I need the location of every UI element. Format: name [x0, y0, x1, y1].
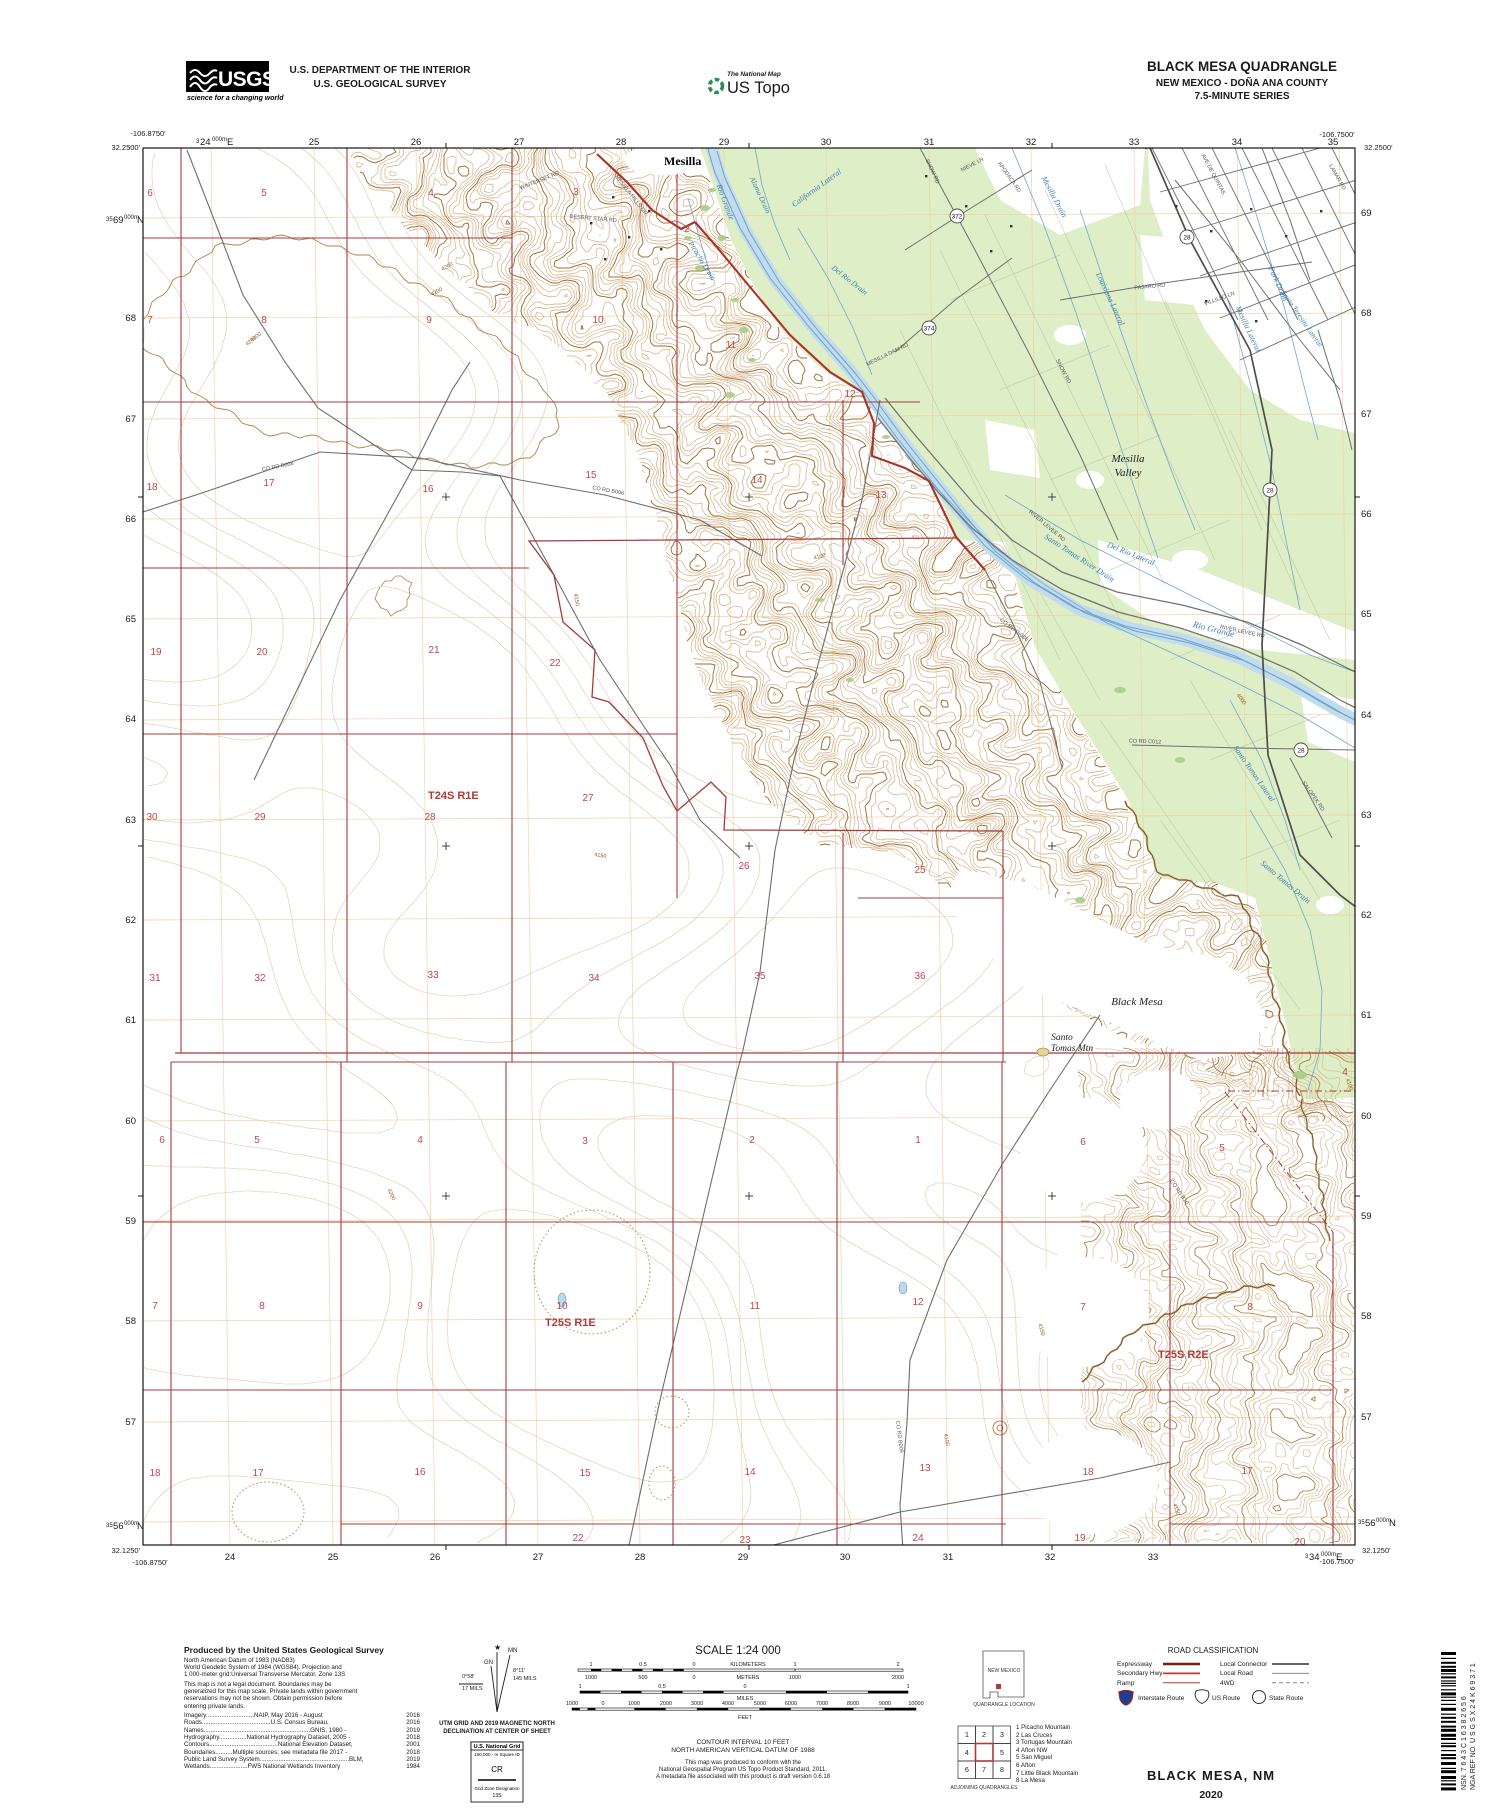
- svg-text:NEW MEXICO - DOÑA ANA COUNTY: NEW MEXICO - DOÑA ANA COUNTY: [1156, 76, 1329, 89]
- svg-text:5: 5: [1000, 1750, 1004, 1757]
- svg-text:8: 8: [1000, 1767, 1004, 1774]
- svg-text:63: 63: [1361, 810, 1372, 821]
- svg-text:6000: 6000: [785, 1701, 797, 1707]
- svg-text:27: 27: [514, 137, 525, 148]
- svg-text:9: 9: [426, 315, 432, 326]
- svg-text:32: 32: [254, 973, 266, 984]
- svg-text:Santo: Santo: [1051, 1033, 1073, 1043]
- svg-text:4: 4: [965, 1750, 969, 1757]
- svg-text:28: 28: [616, 137, 627, 148]
- svg-text:T25S R2E: T25S R2E: [1158, 1349, 1209, 1361]
- svg-text:1: 1: [906, 1684, 909, 1690]
- svg-text:10: 10: [556, 1301, 568, 1312]
- svg-text:2019: 2019: [406, 1756, 420, 1763]
- svg-text:1: 1: [578, 1684, 581, 1690]
- svg-text:5: 5: [254, 1135, 260, 1146]
- svg-text:U.S. GEOLOGICAL SURVEY: U.S. GEOLOGICAL SURVEY: [314, 79, 447, 90]
- svg-text:30: 30: [840, 1552, 851, 1563]
- svg-text:60: 60: [125, 1116, 136, 1127]
- svg-text:7: 7: [152, 1301, 158, 1312]
- svg-text:2: 2: [982, 1732, 986, 1739]
- svg-text:56: 56: [1365, 1518, 1376, 1529]
- svg-text:6: 6: [965, 1767, 969, 1774]
- svg-text:3 Tortugas Mountain: 3 Tortugas Mountain: [1016, 1739, 1073, 1746]
- svg-text:28: 28: [1266, 488, 1274, 495]
- svg-text:2018: 2018: [406, 1749, 420, 1756]
- svg-text:DECLINATION AT CENTER OF SHEET: DECLINATION AT CENTER OF SHEET: [443, 1729, 551, 1735]
- svg-text:14: 14: [744, 1467, 756, 1478]
- svg-text:E: E: [1336, 1552, 1342, 1563]
- svg-text:BLACK MESA, NM: BLACK MESA, NM: [1147, 1768, 1275, 1783]
- svg-text:000m: 000m: [1321, 1552, 1336, 1558]
- svg-text:This map was produced to confo: This map was produced to conform with th…: [685, 1760, 802, 1766]
- svg-text:ROAD CLASSIFICATION: ROAD CLASSIFICATION: [1168, 1646, 1259, 1655]
- svg-text:35: 35: [1328, 137, 1339, 148]
- svg-text:7.5-MINUTE SERIES: 7.5-MINUTE SERIES: [1194, 91, 1289, 102]
- svg-text:Expressway: Expressway: [1117, 1661, 1153, 1668]
- svg-text:1000: 1000: [789, 1675, 801, 1681]
- svg-text:Mesilla: Mesilla: [664, 154, 701, 168]
- svg-text:0: 0: [692, 1675, 695, 1681]
- svg-text:29: 29: [719, 137, 730, 148]
- svg-text:The National Map: The National Map: [727, 71, 781, 78]
- svg-text:62: 62: [1361, 910, 1372, 921]
- svg-text:T24S R1E: T24S R1E: [428, 790, 479, 802]
- svg-text:US Topo: US Topo: [727, 79, 790, 97]
- svg-text:12: 12: [844, 389, 856, 400]
- svg-text:10000: 10000: [908, 1701, 923, 1707]
- svg-text:US Route: US Route: [1212, 1695, 1241, 1702]
- svg-text:CR: CR: [491, 1765, 503, 1774]
- svg-text:GN: GN: [484, 1660, 493, 1666]
- svg-text:MN: MN: [508, 1648, 517, 1654]
- svg-text:13: 13: [875, 490, 887, 501]
- svg-text:2000: 2000: [892, 1675, 904, 1681]
- svg-text:24: 24: [225, 1552, 236, 1563]
- svg-text:13S: 13S: [493, 1793, 503, 1799]
- svg-text:28: 28: [1297, 748, 1305, 755]
- svg-text:4 Afton NW: 4 Afton NW: [1016, 1747, 1047, 1754]
- svg-text:24: 24: [912, 1533, 924, 1544]
- svg-text:26: 26: [738, 861, 750, 872]
- svg-text:-106.8750′: -106.8750′: [130, 129, 166, 138]
- svg-text:T25S R1E: T25S R1E: [545, 1317, 596, 1329]
- svg-text:9000: 9000: [879, 1701, 891, 1707]
- svg-text:500: 500: [638, 1675, 647, 1681]
- svg-text:1000: 1000: [566, 1701, 578, 1707]
- svg-text:0.5: 0.5: [639, 1662, 647, 1668]
- svg-text:Wetlands......................: Wetlands......................FWS Nation…: [184, 1763, 341, 1770]
- svg-text:59: 59: [1361, 1211, 1372, 1222]
- svg-text:U.S. National Grid: U.S. National Grid: [474, 1744, 521, 1750]
- svg-text:2: 2: [749, 1135, 755, 1146]
- svg-text:32.1250′: 32.1250′: [111, 1546, 140, 1555]
- svg-text:68: 68: [1361, 308, 1372, 319]
- svg-text:3: 3: [582, 1136, 588, 1147]
- svg-text:Black Mesa: Black Mesa: [1111, 996, 1163, 1008]
- svg-text:ADJOINING QUADRANGLES: ADJOINING QUADRANGLES: [951, 1785, 1019, 1791]
- svg-text:METERS: METERS: [737, 1675, 760, 1681]
- svg-text:28: 28: [635, 1552, 646, 1563]
- svg-text:E: E: [227, 137, 233, 148]
- svg-text:18: 18: [1082, 1467, 1094, 1478]
- svg-text:65: 65: [1361, 609, 1372, 620]
- svg-text:5 San Miguel: 5 San Miguel: [1016, 1754, 1052, 1761]
- svg-text:2019: 2019: [406, 1727, 420, 1734]
- svg-text:35: 35: [754, 971, 766, 982]
- svg-text:State Route: State Route: [1269, 1695, 1304, 1702]
- svg-text:Produced by the United States: Produced by the United States Geological…: [184, 1645, 384, 1655]
- svg-text:25: 25: [328, 1552, 339, 1563]
- svg-text:29: 29: [738, 1552, 749, 1563]
- svg-text:8: 8: [261, 315, 267, 326]
- svg-text:66: 66: [1361, 509, 1372, 520]
- svg-text:66: 66: [125, 514, 136, 525]
- svg-text:63: 63: [125, 815, 136, 826]
- svg-text:7: 7: [147, 315, 153, 326]
- svg-text:17: 17: [1241, 1466, 1253, 1477]
- svg-text:Imagery.......................: Imagery............................NAIP,…: [184, 1712, 323, 1719]
- svg-text:Grid Zone Designation: Grid Zone Designation: [474, 1786, 520, 1791]
- svg-text:1: 1: [793, 1662, 796, 1668]
- svg-text:National Geospatial Program US: National Geospatial Program US Topo Prod…: [659, 1767, 827, 1773]
- svg-text:33: 33: [1148, 1552, 1159, 1563]
- svg-text:entering private lands.: entering private lands.: [184, 1703, 245, 1710]
- svg-text:31: 31: [149, 973, 161, 984]
- svg-text:4000: 4000: [722, 1701, 734, 1707]
- svg-text:Secondary Hwy: Secondary Hwy: [1117, 1670, 1163, 1677]
- svg-text:30: 30: [821, 137, 832, 148]
- svg-text:26: 26: [411, 137, 422, 148]
- svg-text:MILES: MILES: [737, 1696, 754, 1702]
- svg-text:61: 61: [1361, 1010, 1372, 1021]
- svg-text:69: 69: [1361, 208, 1372, 219]
- svg-text:North American Datum of 1983 (: North American Datum of 1983 (NAD83): [184, 1657, 295, 1664]
- svg-text:N: N: [1389, 1518, 1396, 1529]
- svg-text:2016: 2016: [406, 1719, 420, 1726]
- svg-text:18: 18: [149, 1468, 161, 1479]
- svg-text:2 Las Cruces: 2 Las Cruces: [1016, 1732, 1052, 1739]
- svg-text:374: 374: [924, 326, 935, 333]
- svg-text:30: 30: [146, 812, 158, 823]
- svg-text:32: 32: [1026, 137, 1037, 148]
- svg-text:NORTH AMERICAN VERTICAL DATUM: NORTH AMERICAN VERTICAL DATUM OF 1988: [671, 1747, 815, 1754]
- svg-text:59: 59: [125, 1216, 136, 1227]
- svg-text:11: 11: [726, 340, 737, 351]
- svg-text:World Geodetic System of 1984: World Geodetic System of 1984 (WGS84). P…: [184, 1664, 342, 1671]
- svg-text:This map is not a legal docume: This map is not a legal document. Bounda…: [184, 1681, 332, 1688]
- svg-text:7 Little Black Mountain: 7 Little Black Mountain: [1016, 1770, 1079, 1777]
- svg-text:5: 5: [261, 188, 267, 199]
- svg-text:Valley: Valley: [1115, 467, 1142, 479]
- svg-text:8: 8: [259, 1301, 265, 1312]
- svg-text:0°58′: 0°58′: [462, 1674, 474, 1680]
- svg-text:3: 3: [1000, 1732, 1004, 1739]
- svg-text:UTM GRID AND 2019 MAGNETIC NOR: UTM GRID AND 2019 MAGNETIC NORTH: [439, 1721, 555, 1727]
- svg-text:20: 20: [256, 647, 268, 658]
- svg-text:7: 7: [982, 1767, 986, 1774]
- svg-text:CONTOUR INTERVAL 10 FEET: CONTOUR INTERVAL 10 FEET: [697, 1739, 790, 1746]
- svg-text:57: 57: [125, 1417, 136, 1428]
- svg-text:5000: 5000: [754, 1701, 766, 1707]
- svg-text:6 Afton: 6 Afton: [1016, 1762, 1036, 1769]
- svg-text:61: 61: [125, 1015, 136, 1026]
- svg-text:NEW MEXICO: NEW MEXICO: [988, 1668, 1021, 1674]
- svg-text:31: 31: [924, 137, 935, 148]
- svg-text:145 MILS: 145 MILS: [513, 1676, 537, 1682]
- svg-text:6: 6: [159, 1135, 165, 1146]
- svg-text:Public Land Survey System..: Public Land Survey System...............…: [184, 1756, 364, 1763]
- svg-text:0: 0: [601, 1701, 604, 1707]
- svg-text:19: 19: [150, 647, 162, 658]
- svg-text:11: 11: [750, 1301, 761, 1312]
- svg-text:25: 25: [309, 137, 320, 148]
- svg-text:USGS: USGS: [218, 68, 276, 91]
- svg-text:Local Road: Local Road: [1220, 1670, 1253, 1677]
- svg-text:1000: 1000: [628, 1701, 640, 1707]
- svg-text:16: 16: [414, 1467, 426, 1478]
- svg-text:NSN. 7 6 4 3 C 1 6 3 8 2 6 5: NSN. 7 6 4 3 C 1 6 3 8 2 6 5 6: [1461, 1696, 1468, 1790]
- svg-text:Names.........................: Names...................................…: [184, 1727, 346, 1734]
- svg-text:67: 67: [1361, 409, 1372, 420]
- svg-text:26: 26: [430, 1552, 441, 1563]
- svg-text:64: 64: [1361, 710, 1372, 721]
- svg-text:4: 4: [417, 1135, 423, 1146]
- svg-text:62: 62: [125, 915, 136, 926]
- svg-text:22: 22: [549, 658, 561, 669]
- svg-text:U.S. DEPARTMENT OF THE INTERIO: U.S. DEPARTMENT OF THE INTERIOR: [290, 65, 472, 76]
- svg-text:68: 68: [125, 313, 136, 324]
- svg-text:14: 14: [751, 475, 763, 486]
- svg-text:58: 58: [1361, 1311, 1372, 1322]
- svg-text:32: 32: [1045, 1552, 1056, 1563]
- svg-text:21: 21: [428, 645, 440, 656]
- svg-text:2001: 2001: [406, 1741, 420, 1748]
- svg-text:60: 60: [1361, 1111, 1372, 1122]
- svg-text:0: 0: [692, 1662, 695, 1668]
- svg-text:64: 64: [125, 714, 136, 725]
- svg-text:3000: 3000: [691, 1701, 703, 1707]
- svg-text:Contours......................: Contours................................…: [184, 1741, 353, 1748]
- svg-text:1: 1: [965, 1732, 969, 1739]
- svg-text:1 Picacho Mountain: 1 Picacho Mountain: [1016, 1724, 1071, 1731]
- svg-text:BLACK MESA QUADRANGLE: BLACK MESA QUADRANGLE: [1147, 59, 1337, 74]
- svg-text:17: 17: [263, 478, 275, 489]
- svg-text:1000: 1000: [585, 1675, 597, 1681]
- svg-text:34: 34: [1309, 1552, 1320, 1563]
- svg-text:65: 65: [125, 614, 136, 625]
- svg-text:33: 33: [427, 970, 439, 981]
- svg-text:100,000 - m Square ID: 100,000 - m Square ID: [474, 1752, 520, 1757]
- svg-text:29: 29: [254, 812, 266, 823]
- svg-text:16: 16: [422, 484, 434, 495]
- svg-text:5: 5: [1219, 1143, 1225, 1154]
- svg-text:34: 34: [1232, 137, 1243, 148]
- svg-text:7: 7: [1080, 1302, 1086, 1313]
- svg-text:Roads.........................: Roads...................................…: [184, 1719, 329, 1726]
- svg-text:15: 15: [579, 1468, 591, 1479]
- svg-text:generalized for this map scale: generalized for this map scale. Private …: [184, 1688, 358, 1695]
- svg-text:2018: 2018: [406, 1734, 420, 1741]
- svg-text:28: 28: [1183, 235, 1191, 242]
- svg-text:17: 17: [252, 1468, 264, 1479]
- svg-text:67: 67: [125, 414, 136, 425]
- svg-text:Boundaries..........Multiple: Boundaries..........Multiple sources; se…: [184, 1749, 347, 1756]
- svg-text:32.1250′: 32.1250′: [1362, 1546, 1391, 1555]
- svg-text:56: 56: [113, 1521, 124, 1532]
- svg-text:8 La Mesa: 8 La Mesa: [1016, 1777, 1045, 1784]
- svg-text:2016: 2016: [406, 1712, 420, 1719]
- svg-text:18: 18: [146, 482, 158, 493]
- svg-text:372: 372: [952, 214, 963, 221]
- svg-text:17 MILS: 17 MILS: [462, 1686, 483, 1692]
- svg-text:8°11′: 8°11′: [513, 1668, 525, 1674]
- svg-text:Ramp: Ramp: [1117, 1680, 1135, 1687]
- svg-text:27: 27: [582, 793, 594, 804]
- svg-text:8000: 8000: [847, 1701, 859, 1707]
- svg-text:28: 28: [424, 812, 436, 823]
- svg-text:6: 6: [1080, 1137, 1086, 1148]
- svg-text:Interstate Route: Interstate Route: [1138, 1695, 1185, 1702]
- svg-text:1: 1: [589, 1662, 592, 1668]
- svg-text:36: 36: [914, 971, 926, 982]
- svg-text:1 000-meter grid:Universal Tra: 1 000-meter grid:Universal Transverse Me…: [184, 1671, 345, 1678]
- svg-text:31: 31: [943, 1552, 954, 1563]
- svg-text:3: 3: [573, 187, 579, 198]
- svg-text:32.2500′: 32.2500′: [1364, 143, 1393, 152]
- svg-text:24: 24: [200, 137, 211, 148]
- svg-text:4: 4: [428, 188, 434, 199]
- svg-text:NGA REF NO. U S G S X 2 4 K 6: NGA REF NO. U S G S X 2 4 K 6 9 3 7 1: [1470, 1663, 1477, 1790]
- svg-text:N: N: [137, 1521, 144, 1532]
- svg-text:34: 34: [588, 973, 600, 984]
- svg-text:2020: 2020: [1199, 1789, 1223, 1801]
- svg-text:000m: 000m: [212, 137, 227, 143]
- svg-text:N: N: [137, 215, 144, 226]
- svg-text:33: 33: [1129, 137, 1140, 148]
- svg-text:13: 13: [919, 1463, 931, 1474]
- svg-text:10: 10: [592, 315, 604, 326]
- svg-text:15: 15: [585, 470, 597, 481]
- svg-text:19: 19: [1074, 1533, 1086, 1544]
- svg-text:reservations may not be shown.: reservations may not be shown. Obtain pe…: [184, 1695, 343, 1702]
- svg-text:Hydrography................Nat: Hydrography................National Hydr…: [184, 1734, 350, 1741]
- svg-text:9: 9: [417, 1301, 423, 1312]
- svg-text:69: 69: [113, 215, 124, 226]
- svg-text:1: 1: [915, 1135, 921, 1146]
- svg-text:23: 23: [739, 1535, 751, 1546]
- svg-text:2000: 2000: [660, 1701, 672, 1707]
- svg-text:12: 12: [912, 1297, 924, 1308]
- svg-text:-106.8750′: -106.8750′: [132, 1558, 168, 1567]
- svg-text:6: 6: [147, 188, 153, 199]
- svg-text:CO RD C012: CO RD C012: [1129, 738, 1162, 745]
- svg-text:Tomas Mtn: Tomas Mtn: [1051, 1044, 1093, 1054]
- svg-text:4WD: 4WD: [1220, 1680, 1235, 1687]
- svg-text:57: 57: [1361, 1412, 1372, 1423]
- svg-text:2: 2: [896, 1662, 899, 1668]
- svg-text:Local Connector: Local Connector: [1220, 1661, 1268, 1668]
- svg-text:8: 8: [1247, 1302, 1253, 1313]
- svg-text:7000: 7000: [816, 1701, 828, 1707]
- svg-text:★: ★: [494, 1643, 501, 1652]
- svg-text:1984: 1984: [406, 1763, 420, 1770]
- svg-text:58: 58: [125, 1316, 136, 1327]
- svg-text:0: 0: [743, 1684, 746, 1690]
- svg-text:27: 27: [533, 1552, 544, 1563]
- svg-text:Mesilla: Mesilla: [1111, 453, 1145, 465]
- svg-text:FEET: FEET: [738, 1715, 753, 1721]
- svg-text:science for a changing world: science for a changing world: [187, 95, 284, 102]
- svg-text:32.2500′: 32.2500′: [111, 143, 140, 152]
- svg-text:A metadata file associated wit: A metadata file associated with this pro…: [656, 1774, 831, 1780]
- svg-text:2: 2: [684, 224, 690, 235]
- svg-text:4: 4: [1342, 1067, 1348, 1078]
- svg-text:SCALE 1:24 000: SCALE 1:24 000: [695, 1645, 781, 1657]
- svg-text:25: 25: [914, 865, 926, 876]
- svg-text:22: 22: [572, 1533, 584, 1544]
- svg-text:0.5: 0.5: [658, 1684, 666, 1690]
- svg-text:QUADRANGLE LOCATION: QUADRANGLE LOCATION: [973, 1702, 1035, 1708]
- svg-text:KILOMETERS: KILOMETERS: [730, 1662, 766, 1668]
